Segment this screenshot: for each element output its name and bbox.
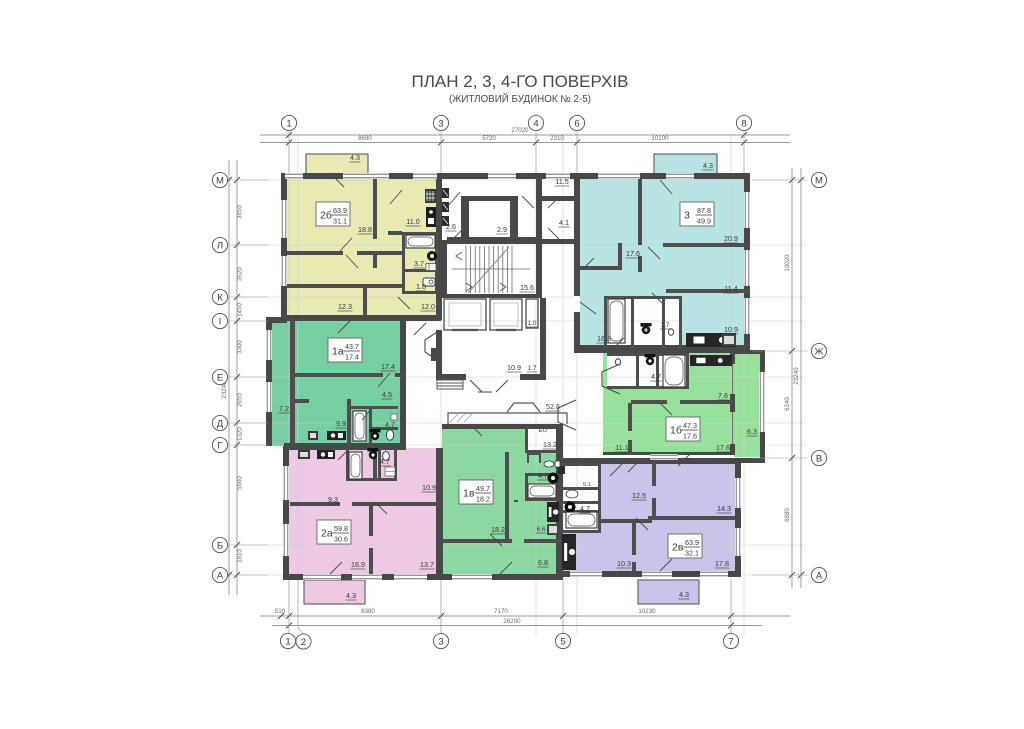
svg-text:32.1: 32.1 xyxy=(685,549,699,558)
svg-text:14.3: 14.3 xyxy=(717,504,731,513)
svg-text:23240: 23240 xyxy=(793,367,800,385)
svg-text:11.4: 11.4 xyxy=(724,284,737,293)
svg-text:49.7: 49.7 xyxy=(476,484,490,493)
svg-text:43.7: 43.7 xyxy=(345,342,359,351)
svg-text:4.3: 4.3 xyxy=(346,591,356,600)
svg-text:К: К xyxy=(217,292,223,303)
svg-text:7170: 7170 xyxy=(494,608,508,615)
svg-text:6.6: 6.6 xyxy=(537,526,546,533)
svg-text:10230: 10230 xyxy=(638,608,656,615)
svg-text:4.2: 4.2 xyxy=(642,323,651,330)
svg-text:3.7: 3.7 xyxy=(414,259,424,268)
svg-text:4.7: 4.7 xyxy=(651,372,661,381)
svg-text:6: 6 xyxy=(574,118,579,129)
svg-text:1б: 1б xyxy=(670,425,682,437)
svg-text:87.8: 87.8 xyxy=(697,206,711,215)
svg-text:26200: 26200 xyxy=(503,618,521,625)
svg-text:2а: 2а xyxy=(321,528,333,540)
svg-text:3: 3 xyxy=(438,118,443,129)
svg-text:І: І xyxy=(219,316,222,327)
svg-text:10.9: 10.9 xyxy=(724,325,738,334)
svg-text:3: 3 xyxy=(438,636,443,647)
svg-text:17.4: 17.4 xyxy=(345,353,359,362)
svg-text:4.3: 4.3 xyxy=(679,590,689,599)
svg-text:ПЛАН 2, 3, 4-ГО ПОВЕРХІВ: ПЛАН 2, 3, 4-ГО ПОВЕРХІВ xyxy=(412,72,629,91)
svg-text:6880: 6880 xyxy=(784,508,791,522)
svg-text:4.3: 4.3 xyxy=(703,161,713,170)
svg-text:А: А xyxy=(217,570,224,581)
svg-text:ЕО: ЕО xyxy=(539,428,548,434)
svg-text:7.2: 7.2 xyxy=(279,404,289,413)
svg-text:17.6: 17.6 xyxy=(683,432,697,441)
svg-text:2.6: 2.6 xyxy=(446,222,456,231)
svg-text:18.2: 18.2 xyxy=(491,525,505,534)
svg-text:59.8: 59.8 xyxy=(334,524,348,533)
svg-text:17.8: 17.8 xyxy=(715,559,729,568)
svg-text:3: 3 xyxy=(684,210,690,222)
svg-text:49.9: 49.9 xyxy=(697,217,711,226)
svg-text:20.9: 20.9 xyxy=(724,234,738,243)
svg-text:16.8: 16.8 xyxy=(597,334,611,343)
svg-text:4: 4 xyxy=(533,118,538,129)
svg-text:12.5: 12.5 xyxy=(632,491,646,500)
svg-text:63.9: 63.9 xyxy=(333,206,347,215)
svg-text:1: 1 xyxy=(286,118,291,129)
svg-text:12.3: 12.3 xyxy=(338,302,352,311)
svg-text:3620: 3620 xyxy=(237,267,244,281)
svg-text:12.0: 12.0 xyxy=(421,302,435,311)
svg-text:510: 510 xyxy=(275,608,286,615)
svg-text:6.8: 6.8 xyxy=(538,558,548,567)
svg-text:11.1: 11.1 xyxy=(615,443,628,452)
svg-text:4.7: 4.7 xyxy=(385,420,395,429)
svg-text:5: 5 xyxy=(560,636,565,647)
svg-text:2: 2 xyxy=(301,637,306,648)
svg-text:17.6: 17.6 xyxy=(716,443,730,452)
svg-text:2650: 2650 xyxy=(237,393,244,407)
svg-text:8380: 8380 xyxy=(361,608,375,615)
svg-text:13.2: 13.2 xyxy=(543,440,557,449)
svg-text:Ж: Ж xyxy=(815,346,824,357)
svg-text:2310: 2310 xyxy=(550,135,564,142)
svg-text:1а: 1а xyxy=(332,346,344,358)
svg-text:4.1: 4.1 xyxy=(559,218,569,227)
svg-text:9.9: 9.9 xyxy=(336,419,346,428)
svg-text:63.9: 63.9 xyxy=(685,538,699,547)
svg-text:Д: Д xyxy=(217,418,224,429)
svg-text:7.6: 7.6 xyxy=(718,391,728,400)
svg-text:6.3: 6.3 xyxy=(747,427,757,436)
svg-text:8: 8 xyxy=(741,118,746,129)
svg-text:В: В xyxy=(816,453,822,464)
svg-text:27020: 27020 xyxy=(511,127,529,134)
svg-text:47.3: 47.3 xyxy=(683,421,697,430)
svg-text:4.7: 4.7 xyxy=(380,457,390,466)
svg-text:11.5: 11.5 xyxy=(555,177,568,186)
svg-text:9.3: 9.3 xyxy=(328,495,338,504)
svg-text:7: 7 xyxy=(728,636,733,647)
svg-text:17.4: 17.4 xyxy=(381,362,395,371)
svg-text:1: 1 xyxy=(285,636,290,647)
svg-text:30.6: 30.6 xyxy=(334,535,348,544)
svg-text:1.8: 1.8 xyxy=(416,282,426,291)
svg-text:18.8: 18.8 xyxy=(358,225,372,234)
svg-text:Г: Г xyxy=(217,440,222,451)
svg-text:1810: 1810 xyxy=(237,549,244,563)
svg-text:10.3: 10.3 xyxy=(617,559,631,568)
svg-text:10100: 10100 xyxy=(651,135,669,142)
svg-text:15.6: 15.6 xyxy=(520,283,534,292)
svg-text:17.6: 17.6 xyxy=(626,249,640,258)
svg-text:4.5: 4.5 xyxy=(382,390,392,399)
svg-text:Б: Б xyxy=(217,540,223,551)
svg-text:3300: 3300 xyxy=(237,340,244,354)
svg-text:18.2: 18.2 xyxy=(476,495,490,504)
svg-text:11.0: 11.0 xyxy=(406,217,419,226)
svg-text:16.9: 16.9 xyxy=(351,560,365,569)
svg-text:2б: 2б xyxy=(320,210,332,222)
svg-text:10020: 10020 xyxy=(784,254,791,272)
svg-text:Е: Е xyxy=(217,372,223,383)
svg-text:4.7: 4.7 xyxy=(580,504,590,513)
svg-text:10.9: 10.9 xyxy=(422,483,436,492)
svg-text:1.0: 1.0 xyxy=(528,320,537,327)
svg-text:5720: 5720 xyxy=(482,135,496,142)
svg-text:52.6: 52.6 xyxy=(546,402,560,411)
svg-text:6340: 6340 xyxy=(784,397,791,411)
svg-text:1.7: 1.7 xyxy=(661,322,670,329)
svg-text:10.9: 10.9 xyxy=(507,363,521,372)
svg-text:(ЖИТЛОВИЙ БУДИНОК № 2-5): (ЖИТЛОВИЙ БУДИНОК № 2-5) xyxy=(449,93,591,105)
svg-text:М: М xyxy=(815,175,823,186)
svg-text:1320: 1320 xyxy=(237,427,244,441)
svg-text:4.3: 4.3 xyxy=(350,153,360,162)
svg-text:Л: Л xyxy=(217,240,223,251)
svg-text:2в: 2в xyxy=(672,542,684,554)
svg-text:1.7: 1.7 xyxy=(528,365,537,372)
svg-text:1450: 1450 xyxy=(237,303,244,317)
svg-text:2.9: 2.9 xyxy=(497,225,507,234)
svg-text:4.7: 4.7 xyxy=(538,471,548,480)
svg-text:М: М xyxy=(216,175,224,186)
svg-text:13.7: 13.7 xyxy=(420,560,434,569)
svg-text:1в: 1в xyxy=(463,488,475,500)
svg-text:8690: 8690 xyxy=(358,135,372,142)
svg-text:3650: 3650 xyxy=(237,205,244,219)
svg-text:5660: 5660 xyxy=(237,476,244,490)
svg-text:5.1: 5.1 xyxy=(583,482,591,488)
svg-text:А: А xyxy=(816,570,823,581)
svg-text:31.1: 31.1 xyxy=(333,217,347,226)
